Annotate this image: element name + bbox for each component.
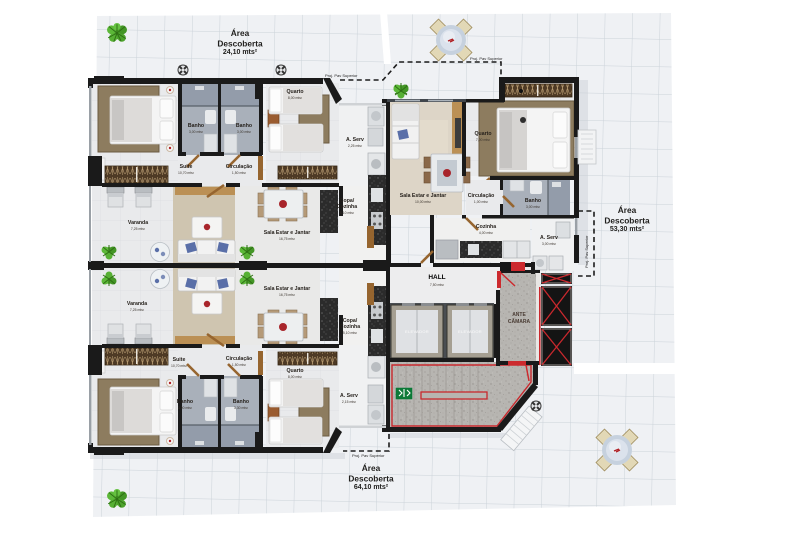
svg-text:10,70 mts²: 10,70 mts² [171, 364, 188, 368]
svg-text:2,15 mts²: 2,15 mts² [342, 400, 357, 404]
svg-text:1,00 mts²: 1,00 mts² [474, 200, 489, 204]
svg-text:ELEVADOR: ELEVADOR [458, 329, 482, 334]
svg-text:Suite: Suite [180, 164, 193, 170]
svg-text:Área: Área [231, 28, 250, 38]
svg-text:ELEVADOR: ELEVADOR [405, 329, 429, 334]
svg-text:7,25 mts²: 7,25 mts² [131, 227, 146, 231]
svg-text:16,75 mts²: 16,75 mts² [279, 237, 296, 241]
svg-text:Cozinha: Cozinha [337, 204, 357, 210]
svg-text:A. Serv: A. Serv [346, 137, 364, 143]
svg-text:Descoberta: Descoberta [348, 474, 394, 484]
svg-text:Varanda: Varanda [128, 220, 148, 226]
svg-text:Circulação: Circulação [468, 193, 495, 199]
svg-text:7,00 mts²: 7,00 mts² [476, 138, 491, 142]
svg-text:Banho: Banho [188, 123, 204, 129]
svg-text:5,10 mts²: 5,10 mts² [340, 211, 355, 215]
svg-text:Sala Estar e Jantar: Sala Estar e Jantar [264, 230, 310, 236]
svg-text:10,70 mts²: 10,70 mts² [178, 171, 195, 175]
svg-text:4,00 mts²: 4,00 mts² [479, 231, 494, 235]
svg-text:HALL: HALL [428, 274, 445, 281]
svg-text:8,00 mts²: 8,00 mts² [288, 375, 303, 379]
svg-text:Descoberta: Descoberta [604, 216, 650, 226]
svg-text:24,10 mts²: 24,10 mts² [223, 49, 258, 56]
svg-text:Quarto: Quarto [286, 368, 303, 374]
svg-text:ANTE: ANTE [512, 312, 526, 318]
svg-text:3,30 mts²: 3,30 mts² [234, 406, 249, 410]
svg-text:Quarto: Quarto [286, 89, 303, 95]
svg-text:3,00 mts²: 3,00 mts² [178, 406, 193, 410]
svg-text:3,00 mts²: 3,00 mts² [526, 205, 541, 209]
svg-text:Sala Estar e Jantar: Sala Estar e Jantar [264, 286, 310, 292]
svg-text:Área: Área [362, 463, 381, 473]
svg-text:53,30 mts²: 53,30 mts² [610, 226, 645, 233]
svg-text:Banho: Banho [177, 399, 193, 405]
svg-text:A. Serv: A. Serv [340, 393, 358, 399]
svg-text:3,00 mts²: 3,00 mts² [189, 130, 204, 134]
svg-text:64,10 mts²: 64,10 mts² [354, 484, 389, 491]
svg-text:5,10 mts²: 5,10 mts² [343, 331, 358, 335]
svg-text:2,25 mts²: 2,25 mts² [348, 144, 363, 148]
svg-text:Quarto: Quarto [474, 131, 491, 137]
svg-text:Proj. Pav Superior: Proj. Pav Superior [325, 73, 358, 78]
svg-text:Proj. Pav Superior: Proj. Pav Superior [470, 56, 503, 61]
svg-text:Cozinha: Cozinha [476, 224, 496, 230]
svg-text:7,50 mts²: 7,50 mts² [430, 283, 445, 287]
svg-text:Banho: Banho [525, 198, 541, 204]
svg-text:8,00 mts²: 8,00 mts² [288, 96, 303, 100]
svg-text:Descoberta: Descoberta [217, 39, 263, 49]
svg-text:Varanda: Varanda [127, 301, 147, 307]
svg-text:Banho: Banho [236, 123, 252, 129]
svg-text:Circulação: Circulação [226, 164, 253, 170]
svg-text:7,25 mts²: 7,25 mts² [130, 308, 145, 312]
svg-text:3,00 mts²: 3,00 mts² [237, 130, 252, 134]
svg-text:1,50 mts²: 1,50 mts² [232, 171, 247, 175]
svg-text:Proj. Pav Superior: Proj. Pav Superior [352, 453, 385, 458]
svg-text:10,00 mts²: 10,00 mts² [415, 200, 432, 204]
svg-text:CÂMARA: CÂMARA [508, 318, 531, 325]
svg-text:Circulação: Circulação [226, 356, 253, 362]
svg-text:Proj. Pav Superior: Proj. Pav Superior [584, 235, 589, 268]
svg-text:Suite: Suite [173, 357, 186, 363]
svg-text:Área: Área [618, 205, 637, 215]
svg-text:16,75 mts²: 16,75 mts² [279, 293, 296, 297]
svg-text:3,00 mts²: 3,00 mts² [542, 242, 557, 246]
svg-text:A. Serv: A. Serv [540, 235, 558, 241]
svg-text:1,50 mts²: 1,50 mts² [232, 363, 247, 367]
svg-text:Cozinha: Cozinha [340, 324, 360, 330]
svg-text:Banho: Banho [233, 399, 249, 405]
svg-text:Sala Estar e Jantar: Sala Estar e Jantar [400, 193, 446, 199]
